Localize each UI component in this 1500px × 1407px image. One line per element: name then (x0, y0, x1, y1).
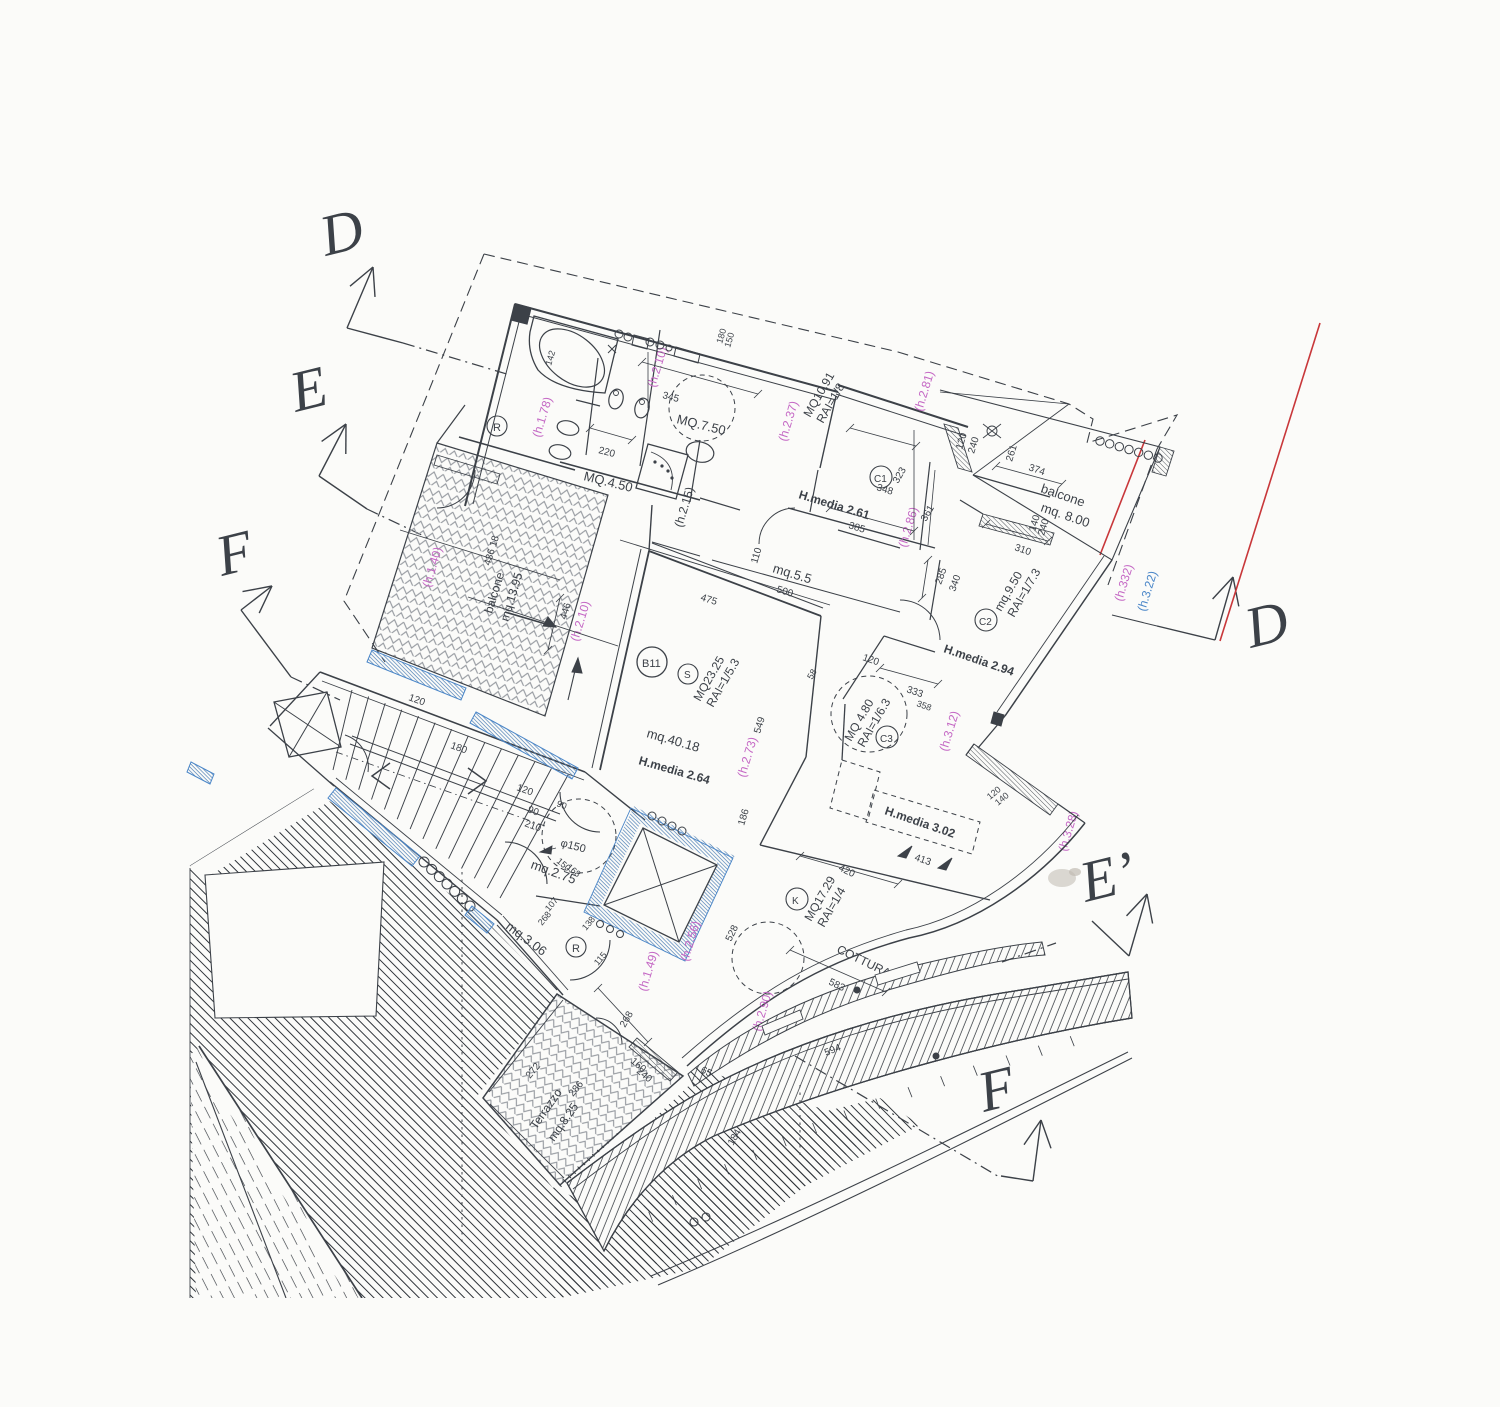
svg-text:K: K (792, 896, 799, 907)
svg-text:R: R (572, 943, 580, 955)
svg-text:S: S (684, 670, 691, 681)
svg-text:R: R (493, 422, 501, 434)
svg-text:C2: C2 (979, 617, 992, 628)
svg-text:C3: C3 (880, 734, 893, 745)
svg-text:B11: B11 (642, 658, 661, 670)
